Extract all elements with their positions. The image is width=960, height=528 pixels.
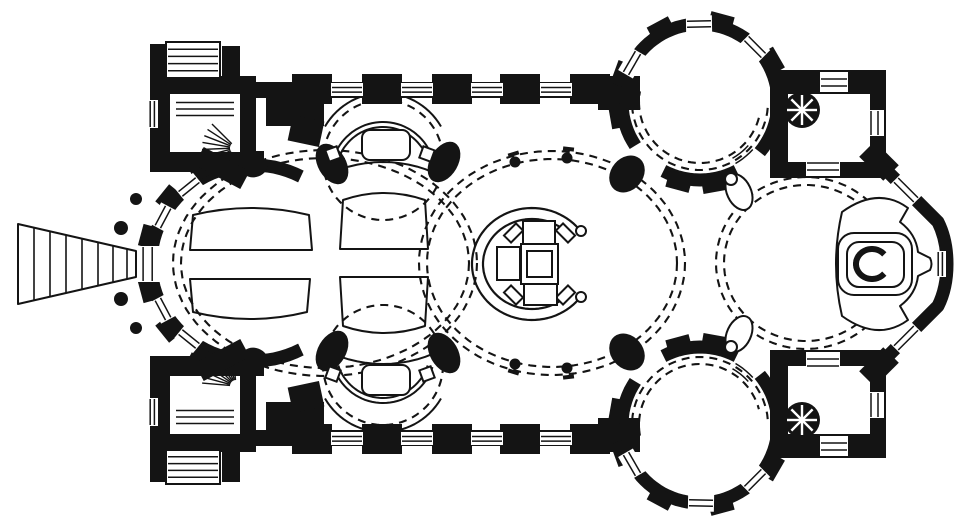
pews <box>190 193 428 333</box>
high-altar <box>836 198 932 330</box>
west-vestibule <box>114 151 301 376</box>
north-wall <box>256 74 640 147</box>
southwest-tower <box>146 339 256 484</box>
northwest-tower <box>146 42 256 189</box>
floor-plan-page <box>0 0 960 528</box>
central-shrine-altar <box>472 208 586 320</box>
south-wall <box>256 381 640 454</box>
south-chapel-altar <box>325 365 434 403</box>
entrance-stairs <box>18 224 136 304</box>
church-floor-plan-drawing <box>0 0 960 528</box>
